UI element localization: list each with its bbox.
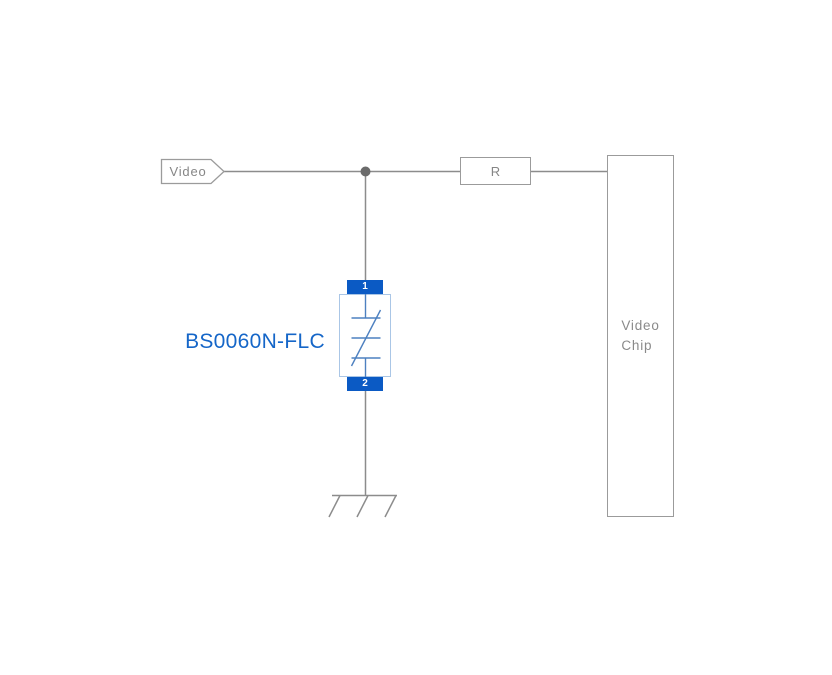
video-chip-label-line1: Video	[621, 316, 659, 336]
ground-icon	[329, 496, 397, 518]
schematic-canvas: Video R Video Chip 1 2 BS0060N-FLC	[0, 0, 832, 675]
video-chip-box: Video Chip	[607, 155, 674, 517]
junction-dot	[361, 167, 371, 177]
part-number-label: BS0060N-FLC	[178, 328, 332, 356]
tvs-diode-icon	[339, 294, 391, 377]
video-chip-label-line2: Chip	[621, 336, 659, 356]
video-chip-label: Video Chip	[621, 316, 659, 356]
tvs-pad-1: 1	[347, 280, 383, 294]
resistor-label: R	[491, 164, 500, 179]
tvs-component: 1 2	[339, 280, 391, 391]
tvs-pin2-label: 2	[362, 379, 368, 389]
net-label-video: Video	[161, 160, 215, 183]
tvs-pad-2: 2	[347, 377, 383, 391]
resistor-box: R	[460, 157, 531, 185]
tvs-pin1-label: 1	[362, 282, 368, 292]
wires-layer	[0, 0, 832, 675]
